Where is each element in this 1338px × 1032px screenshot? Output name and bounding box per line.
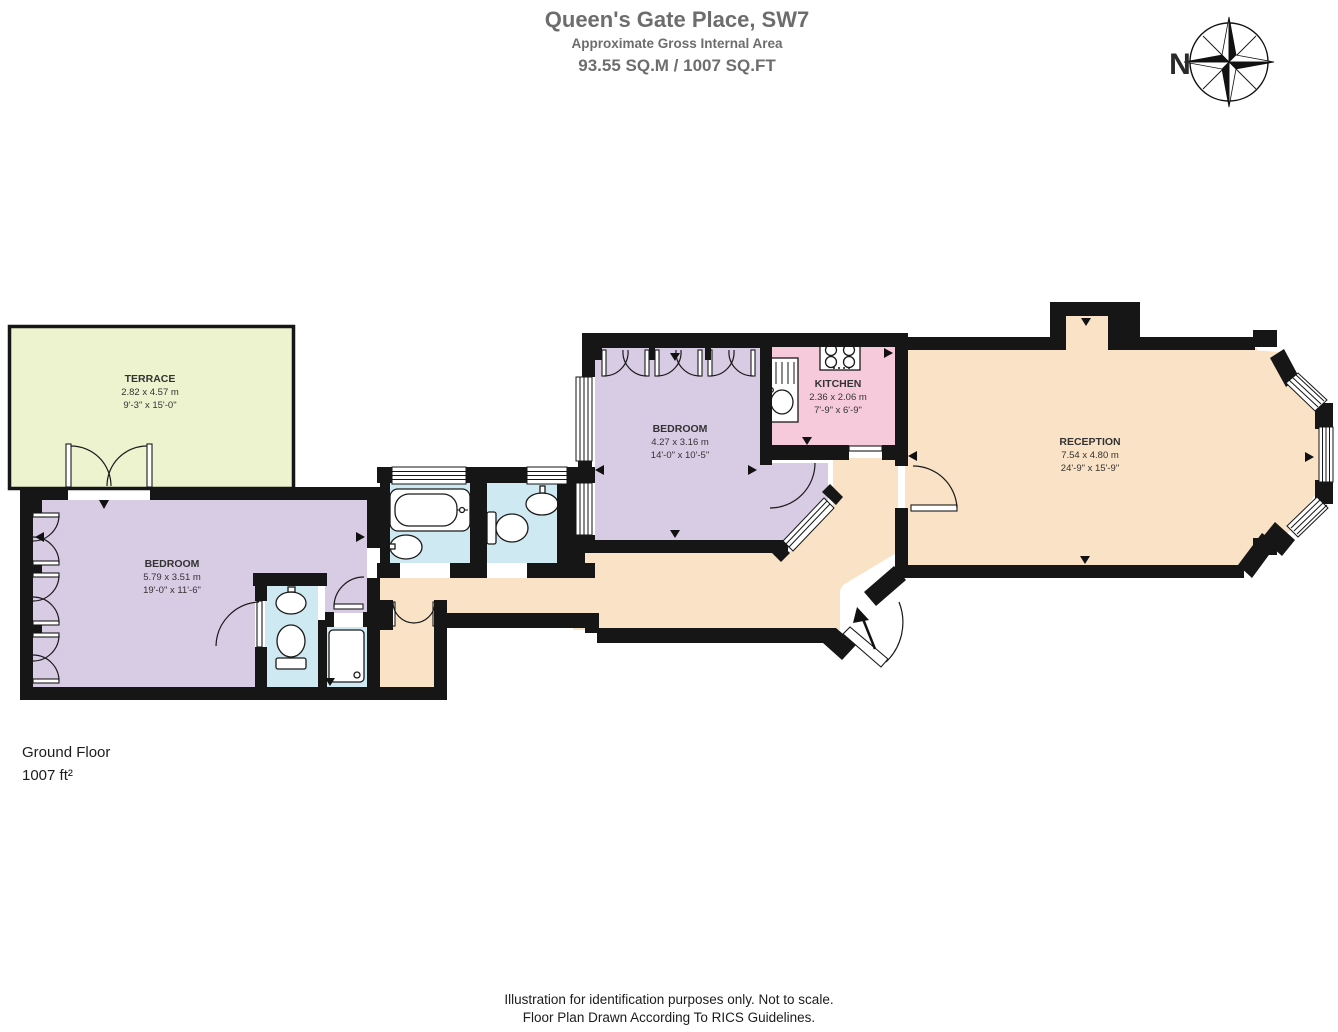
room-size-metric: 2.36 x 2.06 m bbox=[809, 392, 867, 403]
bedroom2-window-lower bbox=[576, 483, 592, 535]
floorplan-page: Queen's Gate Place, SW7 Approximate Gros… bbox=[0, 0, 1338, 1032]
floor-info: Ground Floor 1007 ft² bbox=[22, 744, 110, 784]
terrace-label: TERRACE 2.82 x 4.57 m 9'-3" x 15'-0" bbox=[121, 373, 179, 411]
room-size-imperial: 7'-9" x 6'-9" bbox=[814, 405, 862, 416]
header: Queen's Gate Place, SW7 Approximate Gros… bbox=[545, 7, 809, 75]
porch-area bbox=[380, 578, 437, 690]
footer: Illustration for identification purposes… bbox=[504, 992, 833, 1025]
room-size-imperial: 24'-9" x 15'-9" bbox=[1061, 463, 1119, 474]
room-size-imperial: 19'-0" x 11'-6" bbox=[143, 585, 201, 596]
compass-star bbox=[1184, 17, 1274, 107]
entrance-door bbox=[843, 602, 903, 667]
wc-window bbox=[527, 467, 567, 484]
wc-toilet-icon bbox=[487, 512, 528, 544]
room-name: RECEPTION bbox=[1059, 436, 1120, 448]
room-name: BEDROOM bbox=[653, 423, 708, 435]
bedroom2-window-upper bbox=[576, 377, 592, 461]
disclaimer-line2: Floor Plan Drawn According To RICS Guide… bbox=[523, 1010, 815, 1025]
page-subtitle: Approximate Gross Internal Area bbox=[571, 36, 783, 51]
floor-area: 1007 ft² bbox=[22, 767, 73, 784]
bedroom1-label: BEDROOM 5.79 x 3.51 m 19'-0" x 11'-6" bbox=[143, 558, 201, 596]
shower-tray-icon bbox=[329, 630, 364, 682]
bathtub-icon bbox=[390, 489, 470, 531]
bathroom-window bbox=[392, 467, 466, 484]
room-size-imperial: 9'-3" x 15'-0" bbox=[123, 400, 176, 411]
floorplan-canvas: Queen's Gate Place, SW7 Approximate Gros… bbox=[0, 0, 1338, 1032]
compass-rose-icon: N bbox=[1169, 17, 1274, 107]
room-size-metric: 7.54 x 4.80 m bbox=[1061, 450, 1119, 461]
room-name: TERRACE bbox=[125, 373, 176, 385]
bay-window-middle bbox=[1319, 427, 1333, 482]
reception-label: RECEPTION 7.54 x 4.80 m 24'-9" x 15'-9" bbox=[1059, 436, 1120, 474]
room-size-imperial: 14'-0" x 10'-5" bbox=[651, 450, 709, 461]
room-size-metric: 5.79 x 3.51 m bbox=[143, 572, 201, 583]
gross-area: 93.55 SQ.M / 1007 SQ.FT bbox=[578, 56, 776, 75]
room-name: KITCHEN bbox=[815, 378, 862, 390]
kitchen-label: KITCHEN 2.36 x 2.06 m 7'-9" x 6'-9" bbox=[809, 378, 867, 416]
ensuite-toilet-icon bbox=[276, 625, 306, 669]
page-title: Queen's Gate Place, SW7 bbox=[545, 7, 809, 32]
room-size-metric: 4.27 x 3.16 m bbox=[651, 437, 709, 448]
north-label: N bbox=[1169, 48, 1191, 81]
kitchen-door bbox=[849, 446, 882, 451]
bedroom2-label: BEDROOM 4.27 x 3.16 m 14'-0" x 10'-5" bbox=[651, 423, 709, 461]
floor-name: Ground Floor bbox=[22, 744, 110, 761]
room-size-metric: 2.82 x 4.57 m bbox=[121, 387, 179, 398]
disclaimer-line1: Illustration for identification purposes… bbox=[504, 992, 833, 1007]
room-name: BEDROOM bbox=[145, 558, 200, 570]
